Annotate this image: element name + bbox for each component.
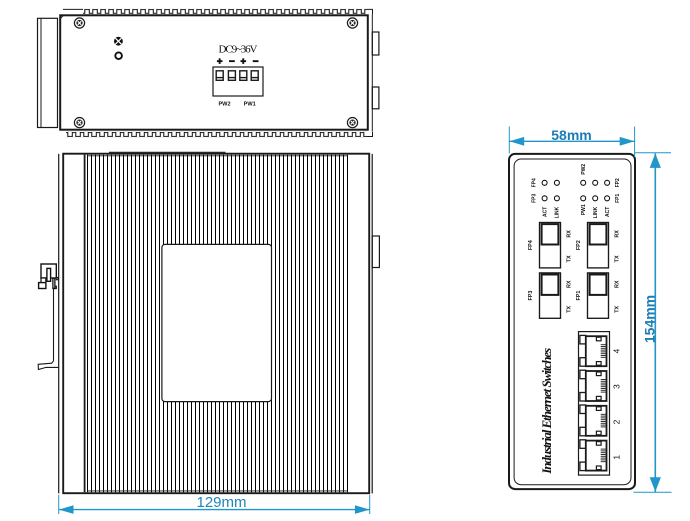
svg-text:FP2: FP2 [615,178,621,187]
svg-text:3: 3 [612,384,622,389]
svg-text:FP3: FP3 [528,291,534,301]
svg-text:RX: RX [567,230,573,238]
svg-text:FP2: FP2 [576,240,582,250]
svg-text:LINK: LINK [555,206,561,218]
svg-text:58mm: 58mm [551,127,591,143]
svg-text:LINK: LINK [593,206,599,218]
svg-text:4: 4 [612,349,622,354]
svg-text:PW2: PW2 [581,164,587,175]
svg-text:FP3: FP3 [531,193,537,202]
svg-text:PW1: PW1 [581,204,587,215]
svg-text:Industrial Ethernet Switches: Industrial Ethernet Switches [539,348,554,475]
svg-text:PW2: PW2 [218,102,230,108]
svg-text:RX: RX [615,280,621,288]
svg-text:ACT: ACT [542,207,548,217]
svg-text:1: 1 [612,455,622,460]
svg-text:PW1: PW1 [244,102,256,108]
svg-text:FP4: FP4 [531,178,537,187]
svg-text:TX: TX [615,305,621,312]
svg-text:154mm: 154mm [641,295,657,343]
svg-text:129mm: 129mm [196,494,246,511]
svg-text:2: 2 [612,419,622,424]
svg-text:FP1: FP1 [576,291,582,301]
svg-text:RX: RX [615,230,621,238]
svg-text:TX: TX [615,255,621,262]
svg-text:ACT: ACT [605,207,611,217]
svg-text:TX: TX [567,255,573,262]
svg-text:FP4: FP4 [528,240,534,250]
svg-text:DC9~36V: DC9~36V [219,44,258,56]
svg-text:TX: TX [567,305,573,312]
svg-text:RX: RX [567,280,573,288]
svg-text:FP1: FP1 [615,193,621,202]
